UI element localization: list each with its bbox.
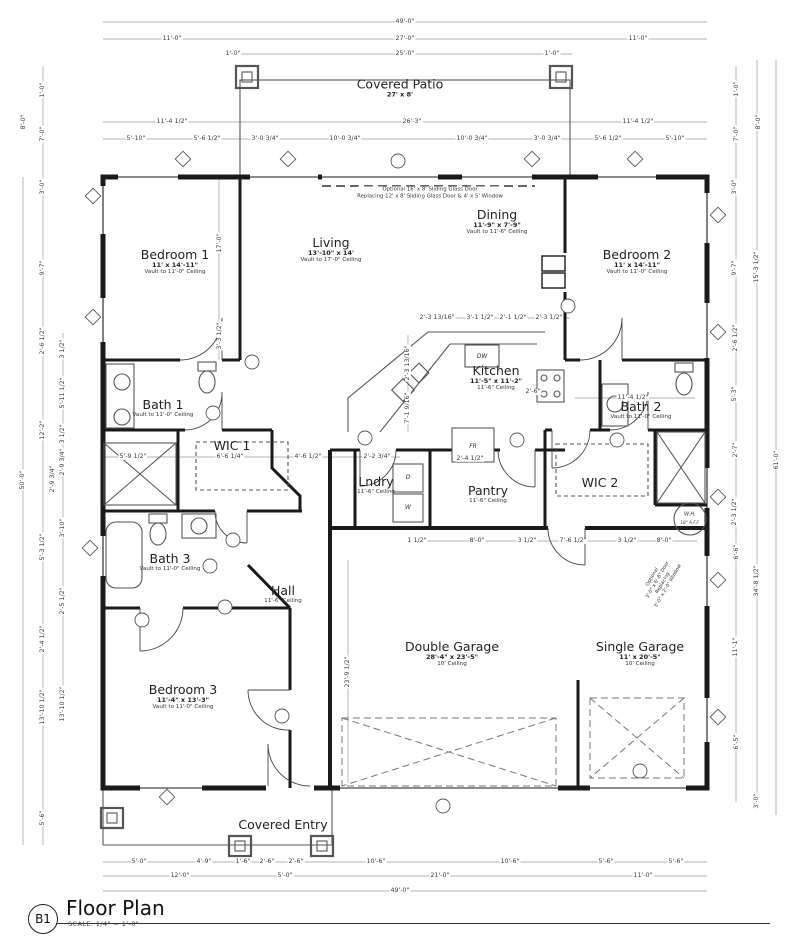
- drawing-ref-bubble: B1: [28, 904, 58, 934]
- window-openings: [98, 172, 712, 793]
- fixtures: [104, 332, 706, 588]
- exterior-walls: [103, 177, 707, 788]
- dimension-lines: [23, 22, 776, 891]
- door-tags: [135, 154, 647, 813]
- covered-entry-outline: [101, 788, 333, 856]
- drawing-title: Floor Plan: [66, 896, 165, 920]
- drawing-scale: SCALE: 1/4" = 1'-0": [68, 920, 139, 928]
- title-block: B1 Floor Plan SCALE: 1/4" = 1'-0": [0, 896, 800, 946]
- floorplan-sheet: Covered Patio27' x 8'Bedroom 111' x 14'-…: [0, 0, 800, 950]
- title-rule-line: [56, 923, 770, 924]
- garage-door-outlines: [342, 698, 684, 786]
- interior-walls: [103, 177, 707, 788]
- floor-plan-drawing: [0, 0, 800, 950]
- drawing-ref: B1: [35, 912, 51, 926]
